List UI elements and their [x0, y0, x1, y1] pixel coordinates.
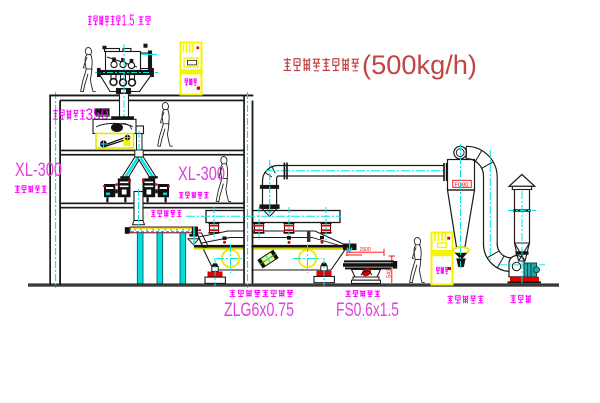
svg-text:XL-300: XL-300 — [178, 164, 225, 185]
svg-text:1500: 1500 — [360, 247, 371, 253]
svg-text:ZLG6x0.75: ZLG6x0.75 — [224, 300, 294, 321]
svg-text:FQ80: FQ80 — [455, 183, 469, 189]
svg-text:542: 542 — [387, 269, 393, 278]
svg-text:1.5: 1.5 — [122, 13, 135, 30]
svg-text:(500kg/h): (500kg/h) — [362, 50, 477, 80]
svg-text:FS0.6x1.5: FS0.6x1.5 — [336, 300, 399, 321]
svg-text:XL-300: XL-300 — [15, 160, 62, 181]
